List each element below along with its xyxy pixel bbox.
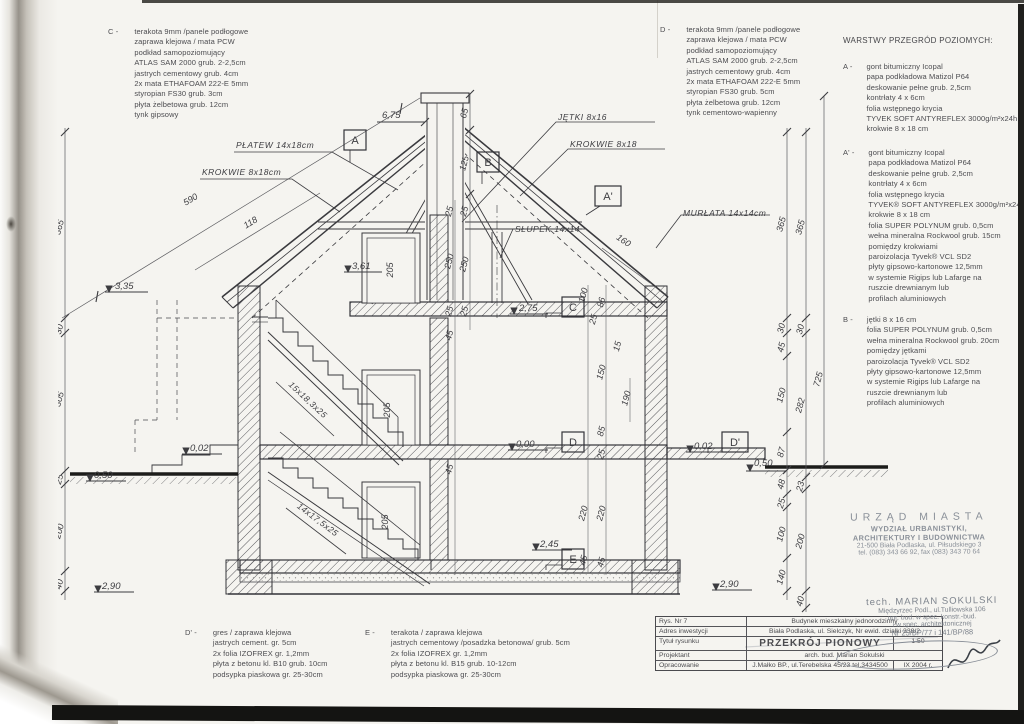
prepared-by-label: Opracowanie — [656, 661, 747, 670]
dim: 87 — [775, 445, 788, 458]
spec-text-line: paroizolacja Tyvek® VCL SD2 — [867, 357, 1021, 367]
designer-stamp: tech. MARIAN SOKULSKI Międzyrzec Podl., … — [842, 594, 1023, 638]
spec-block-d-prime: D' - gres / zaprawa klejowajastrych ceme… — [185, 628, 395, 680]
marker-a: A — [351, 135, 359, 147]
designer-label: Projektant — [656, 651, 747, 660]
spec-text-line: płyty gipsowo-kartonowe 12,5mm — [868, 262, 1024, 272]
spec-text-line: folia wstępnego krycia — [866, 104, 1021, 114]
spec-block-a: A - gont bitumiczny Icopalpapa podkładow… — [843, 62, 1021, 135]
level-basement: 2,45 — [539, 539, 559, 550]
spec-block-c: C - terakota 9mm /panele podłogowezapraw… — [108, 27, 380, 121]
spec-text-line: profilach aluminiowych — [868, 294, 1024, 304]
level-terrace-left: 0,02 — [190, 443, 209, 454]
spec-text-line: zaprawa klejowa / mata PCW — [686, 35, 836, 45]
spec-text-line: folia SUPER POLYNUM grub. 0,5cm — [868, 221, 1024, 231]
dim: 30 — [794, 323, 806, 335]
marker-d: D — [569, 437, 577, 449]
label-krokwie-left: KROKWIE 8x18cm — [202, 167, 281, 177]
spec-text-line: jastrych cementowy grub. 4cm — [134, 69, 380, 79]
spec-text-line: terakota 9mm /panele podłogowe — [686, 25, 836, 35]
stamp-line: URZĄD MIASTA — [816, 510, 1022, 524]
label-stairs-upper: 15x18,3x25 — [287, 379, 330, 420]
spec-text-line: kontrłaty 4 x 6cm — [868, 179, 1024, 189]
dim: 190 — [619, 390, 633, 407]
spec-text-line: płyta żelbetowa grub. 12cm — [134, 100, 380, 110]
drawing-number-label: Rys. Nr 7 — [656, 617, 747, 626]
spec-text-line: 2x mata ETHAFOAM 222-E 5mm — [686, 77, 836, 87]
spec-text-line: kontrłaty 4 x 6cm — [866, 93, 1021, 103]
scanned-drawing-page: 365 30 330 240 365 30 305 25 200 40 365 … — [0, 0, 1024, 724]
dim: 48 — [775, 478, 787, 490]
spec-text-line: deskowanie pełne grub. 2,5cm — [866, 83, 1021, 93]
spec-text-line: zaprawa klejowa / mata PCW — [134, 37, 380, 47]
level-c: 2,75 — [518, 303, 538, 314]
dim: 590 — [181, 191, 199, 207]
spec-text-line: tynk gipsowy — [134, 110, 380, 120]
spec-text-line: styropian FS30 grub. 3cm — [134, 89, 380, 99]
level-ground-right: 0,50 — [754, 458, 773, 469]
spec-block-d: D - terakota 9mm /panele podłogowezapraw… — [660, 25, 836, 119]
scan-edge-top — [142, 0, 1024, 3]
spec-label: D - — [660, 25, 670, 119]
marker-c: C — [569, 302, 577, 314]
spec-text-line: papa podkładowa Matizol P64 — [866, 72, 1021, 82]
spec-lines: gont bitumiczny Icopalpapa podkładowa Ma… — [868, 148, 1024, 304]
spec-text-line: wełna mineralna Rockwool grub. 20cm — [867, 336, 1021, 346]
spec-text-line: w systemie Rigips lub Lafarge na — [867, 377, 1021, 387]
spec-text-line: ruszcie drewnianym lub — [868, 283, 1024, 293]
spec-text-line: deskowanie pełne grub. 2,5cm — [868, 169, 1024, 179]
dim: 45 — [443, 462, 456, 475]
dim: 282 — [793, 397, 807, 415]
spec-text-line: 2x mata ETHAFOAM 222-E 5mm — [134, 79, 380, 89]
level-zero: 0,00 — [516, 439, 535, 450]
spec-text-line: profilach aluminiowych — [867, 398, 1021, 408]
spec-text-line: gont bitumiczny Icopal — [868, 148, 1024, 158]
spec-text-line: ATLAS SAM 2000 grub. 2-2,5cm — [134, 58, 380, 68]
dim: 140 — [774, 569, 788, 586]
dimension-labels-right: 365 30 45 150 87 48 25 100 140 365 30 28… — [181, 106, 825, 607]
level-eaves: 3,35 — [115, 281, 134, 292]
spec-text-line: styropian FS30 grub. 5cm — [686, 87, 836, 97]
level-terrace-right: 0,02 — [694, 441, 713, 452]
marker-a-prime: A' — [603, 191, 612, 203]
spec-label: B - — [843, 315, 853, 409]
dim: 160 — [615, 232, 633, 249]
spec-text-line: pomiędzy krokwiami — [868, 242, 1024, 252]
dim: 15 — [611, 339, 624, 352]
dim: 85 — [595, 424, 608, 437]
spec-lines: jętki 8 x 16 cmfolia SUPER POLYNUM grub.… — [867, 315, 1021, 409]
spec-text-line: podkład samopoziomujący — [686, 46, 836, 56]
dim: 25 — [458, 204, 471, 218]
label-platew: PŁATEW 14x18cm — [236, 140, 314, 150]
dim: 150 — [774, 387, 788, 404]
spec-lines: terakota 9mm /panele podłogowezaprawa kl… — [686, 25, 836, 119]
paper-crease — [657, 0, 658, 58]
callout-labels: PŁATEW 14x18cm KROKWIE 8x18cm JĘTKI 8x16… — [200, 112, 770, 554]
dim: 30 — [775, 322, 787, 334]
spec-text-line: 2x folia IZOFREX gr. 1,2mm — [391, 649, 615, 659]
level-foundation-right: 2,90 — [719, 579, 739, 590]
spec-block-e: E - terakota / zaprawa klejowajastrych c… — [365, 628, 615, 680]
dim: 365 — [793, 218, 807, 236]
ground-lines — [70, 467, 888, 484]
hidden-outline-dashed — [135, 300, 238, 455]
label-murlata: MURŁATA 14x14cm — [683, 208, 766, 218]
spec-label: A' - — [843, 148, 854, 304]
layers-header: WARSTWY PRZEGRÓD POZIOMYCH: — [843, 36, 993, 45]
spec-text-line: gont bitumiczny Icopal — [866, 62, 1021, 72]
drawing-title-label: Tytuł rysunku — [656, 637, 747, 650]
level-foundation-left: 2,90 — [101, 581, 121, 592]
spec-text-line: papa podkładowa Matizol P64 — [868, 158, 1024, 168]
spec-text-line: paroizolacja Tyvek® VCL SD2 — [868, 252, 1024, 262]
spec-text-line: w systemie Rigips lub Lafarge na — [868, 273, 1024, 283]
city-office-stamp: URZĄD MIASTA WYDZIAŁ URBANISTYKI, ARCHIT… — [816, 510, 1022, 557]
spec-text-line: krokwie 8 x 18 cm — [868, 210, 1024, 220]
dim: 40 — [794, 595, 806, 607]
dim: 205 — [380, 514, 390, 531]
spec-block-a-prime: A' - gont bitumiczny Icopalpapa podkłado… — [843, 148, 1021, 304]
spec-block-b: B - jętki 8 x 16 cmfolia SUPER POLYNUM g… — [843, 315, 1021, 409]
spec-label: C - — [108, 27, 118, 121]
spec-text-line: ATLAS SAM 2000 grub. 2-2,5cm — [686, 56, 836, 66]
spec-label: D' - — [185, 628, 197, 680]
spec-text-line: tynk cementowo-wapienny — [686, 108, 836, 118]
spec-lines: gont bitumiczny Icopalpapa podkładowa Ma… — [866, 62, 1021, 135]
door-frames — [362, 233, 420, 558]
dim: 100 — [774, 526, 788, 543]
spec-text-line: ruszcie drewnianym lub — [867, 388, 1021, 398]
dim: 45 — [775, 340, 788, 353]
label-krokwie-right: KROKWIE 8x18 — [570, 139, 637, 149]
spec-text-line: płyta żelbetowa grub. 12cm — [686, 98, 836, 108]
spec-label: E - — [365, 628, 375, 680]
spec-text-line: TYVEK® SOFT ANTYREFLEX 3000g/m²x24h — [868, 200, 1024, 210]
spec-text-line: płyta z betonu kl. B15 grub. 10-12cm — [391, 659, 615, 669]
spec-text-line: podsypka piaskowa gr. 25-30cm — [391, 670, 615, 680]
spec-label: A - — [843, 62, 852, 135]
book-spine-mark — [6, 216, 16, 232]
marker-e: E — [569, 554, 576, 566]
spec-lines: terakota / zaprawa klejowajastrych cemen… — [391, 628, 615, 680]
spec-text-line: terakota / zaprawa klejowa — [391, 628, 615, 638]
spec-text-line: TYVEK SOFT ANTYREFLEX 3000g/m²x24h — [866, 114, 1021, 124]
dim: 45 — [443, 328, 456, 341]
label-jetki: JĘTKI 8x16 — [557, 112, 607, 122]
level-attic: 3,61 — [352, 261, 371, 272]
level-ground-left: 0,50 — [94, 470, 113, 481]
spec-text-line: folia wstępnego krycia — [868, 190, 1024, 200]
dim: 205 — [382, 402, 392, 419]
spec-text-line: jętki 8 x 16 cm — [867, 315, 1021, 325]
dim: 205 — [385, 262, 395, 279]
level-ridge: 6,75 — [382, 110, 401, 121]
spec-text-line: krokwie 8 x 18 cm — [866, 124, 1021, 134]
marker-b: B — [484, 157, 491, 169]
spec-text-line: pomiędzy jętkami — [867, 346, 1021, 356]
spec-text-line: wełna mineralna Rockwool grub. 15cm — [868, 231, 1024, 241]
dim: 200 — [793, 533, 807, 551]
dim: 725 — [811, 370, 825, 388]
spec-text-line: jastrych cementowy /posadzka betonowa/ g… — [391, 638, 615, 648]
dim: 65 — [458, 106, 471, 119]
spec-text-line: jastrych cementowy grub. 4cm — [686, 67, 836, 77]
spec-text-line: płyty gipsowo-kartonowe 12,5mm — [867, 367, 1021, 377]
address-label: Adres inwestycji — [656, 627, 747, 636]
dim: 118 — [242, 214, 259, 230]
spec-text-line: terakota 9mm /panele podłogowe — [134, 27, 380, 37]
dim: 365 — [774, 215, 788, 233]
spec-text-line: folia SUPER POLYNUM grub. 0,5cm — [867, 325, 1021, 335]
spec-text-line: podkład samopoziomujący — [134, 48, 380, 58]
spec-lines: terakota 9mm /panele podłogowezaprawa kl… — [134, 27, 380, 121]
marker-d-prime: D' — [730, 437, 740, 449]
scan-edge-right — [1018, 4, 1024, 716]
